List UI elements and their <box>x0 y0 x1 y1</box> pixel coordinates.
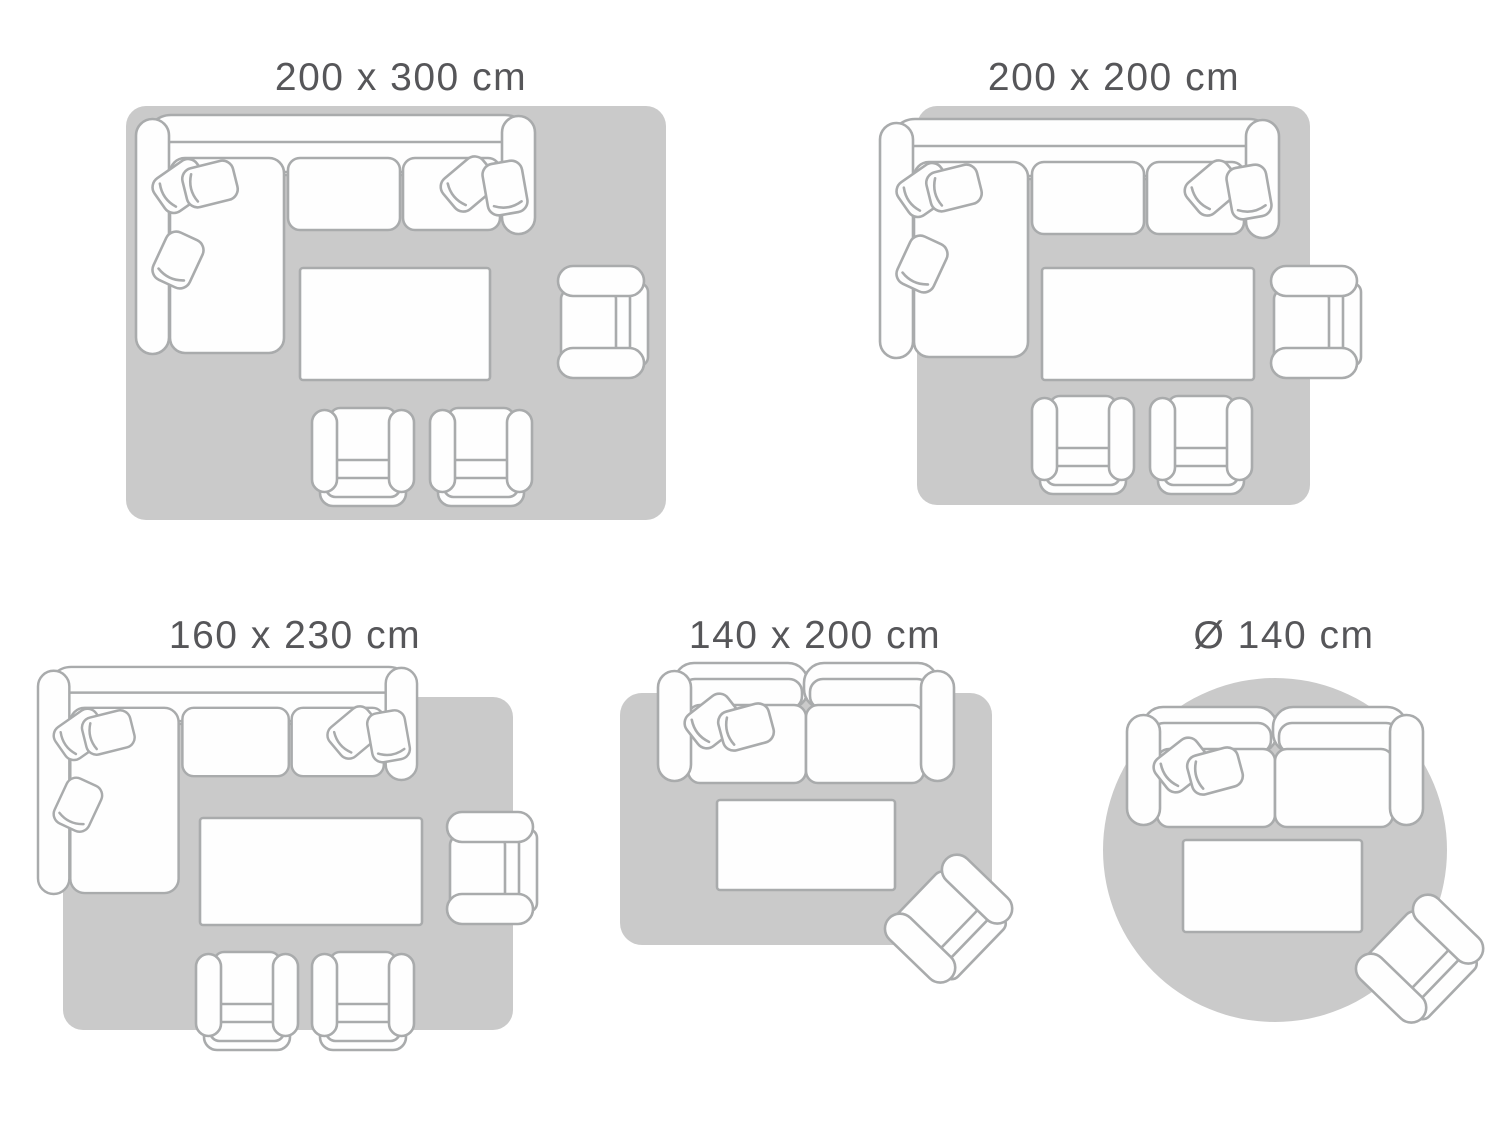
coffee-table-icon <box>1183 840 1362 932</box>
armchair-icon <box>447 812 537 924</box>
coffee-table-icon <box>717 800 895 890</box>
rug-size-diagram: 200 x 300 cm 200 x 200 cm 160 x 230 cm <box>0 0 1500 1125</box>
size-label: 140 x 200 cm <box>689 614 941 657</box>
coffee-table-icon <box>1042 268 1254 380</box>
rug-size-guide: 200 x 300 cm 200 x 200 cm 160 x 230 cm <box>0 0 1500 1125</box>
club-chair-icon <box>312 408 414 506</box>
panel-200x300: 200 x 300 cm <box>126 56 666 520</box>
two-seater-sofa-icon <box>1127 707 1423 827</box>
coffee-table-icon <box>200 818 422 925</box>
size-label: 200 x 200 cm <box>988 56 1240 99</box>
panel-160x230: 160 x 230 cm <box>38 614 537 1050</box>
club-chair-icon <box>1032 396 1134 494</box>
size-label: 200 x 300 cm <box>275 56 527 99</box>
club-chair-icon <box>430 408 532 506</box>
two-seater-sofa-icon <box>658 663 954 783</box>
club-chair-icon <box>312 952 414 1050</box>
size-label: Ø 140 cm <box>1193 614 1374 657</box>
panel-round-140: Ø 140 cm <box>1103 614 1492 1032</box>
panel-140x200: 140 x 200 cm <box>620 614 1021 992</box>
club-chair-icon <box>196 952 298 1050</box>
armchair-icon <box>1271 266 1361 378</box>
size-label: 160 x 230 cm <box>169 614 421 657</box>
armchair-icon <box>558 266 648 378</box>
panel-200x200: 200 x 200 cm <box>880 56 1361 505</box>
coffee-table-icon <box>300 268 490 380</box>
club-chair-icon <box>1150 396 1252 494</box>
